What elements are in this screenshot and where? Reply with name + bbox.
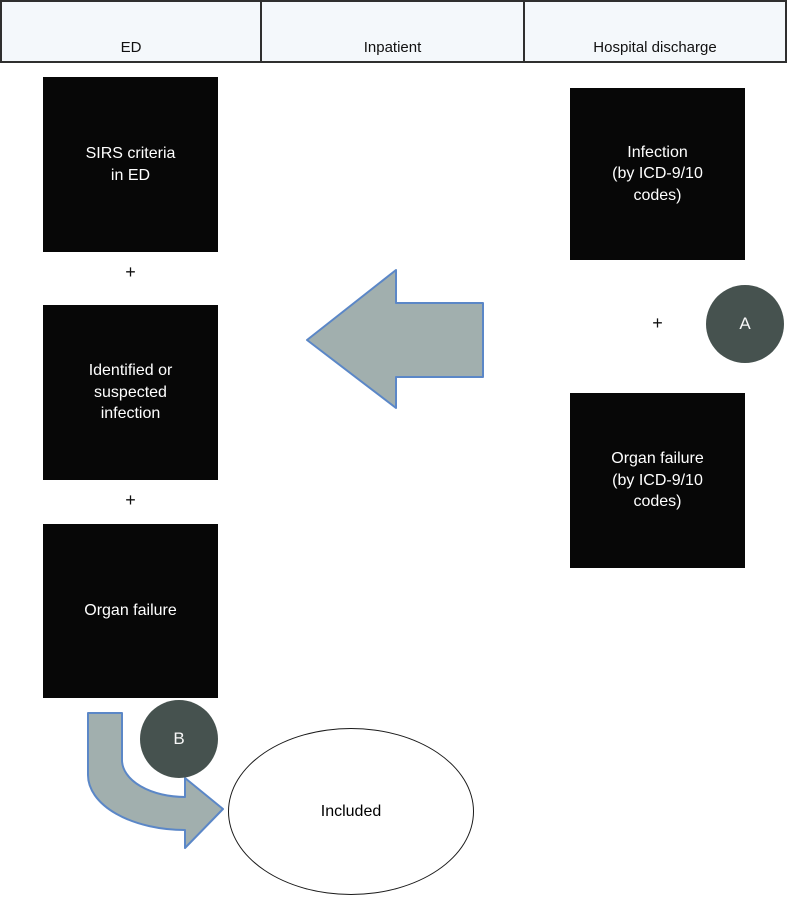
marker-a-label: A (739, 314, 750, 334)
diagram-canvas: ED Inpatient Hospital discharge SIRS cri… (0, 0, 787, 897)
box-infection-icd-codes: Infection (by ICD-9/10 codes) (570, 88, 745, 260)
plus-sign-ed-2: + (43, 489, 218, 511)
left-arrow-shape (307, 270, 483, 408)
included-label: Included (321, 803, 382, 821)
box-organ-failure: Organ failure (43, 524, 218, 698)
left-arrow-icon (300, 263, 490, 413)
lane-header-row: ED Inpatient Hospital discharge (0, 0, 787, 63)
included-ellipse: Included (228, 728, 474, 895)
lane-header-ed-label: ED (121, 39, 142, 56)
lane-header-hospital-discharge: Hospital discharge (525, 2, 785, 61)
lane-header-inpatient-label: Inpatient (364, 39, 422, 56)
box-identified-suspected-infection: Identified or suspected infection (43, 305, 218, 480)
lane-header-ed: ED (2, 2, 262, 61)
marker-b-circle: B (140, 700, 218, 778)
box-organ-failure-icd-codes: Organ failure (by ICD-9/10 codes) (570, 393, 745, 568)
lane-header-hospital-discharge-label: Hospital discharge (593, 39, 716, 56)
marker-b-label: B (173, 729, 184, 749)
marker-a-circle: A (706, 285, 784, 363)
box-sirs-criteria: SIRS criteria in ED (43, 77, 218, 252)
lane-header-inpatient: Inpatient (262, 2, 525, 61)
plus-sign-ed-1: + (43, 261, 218, 283)
